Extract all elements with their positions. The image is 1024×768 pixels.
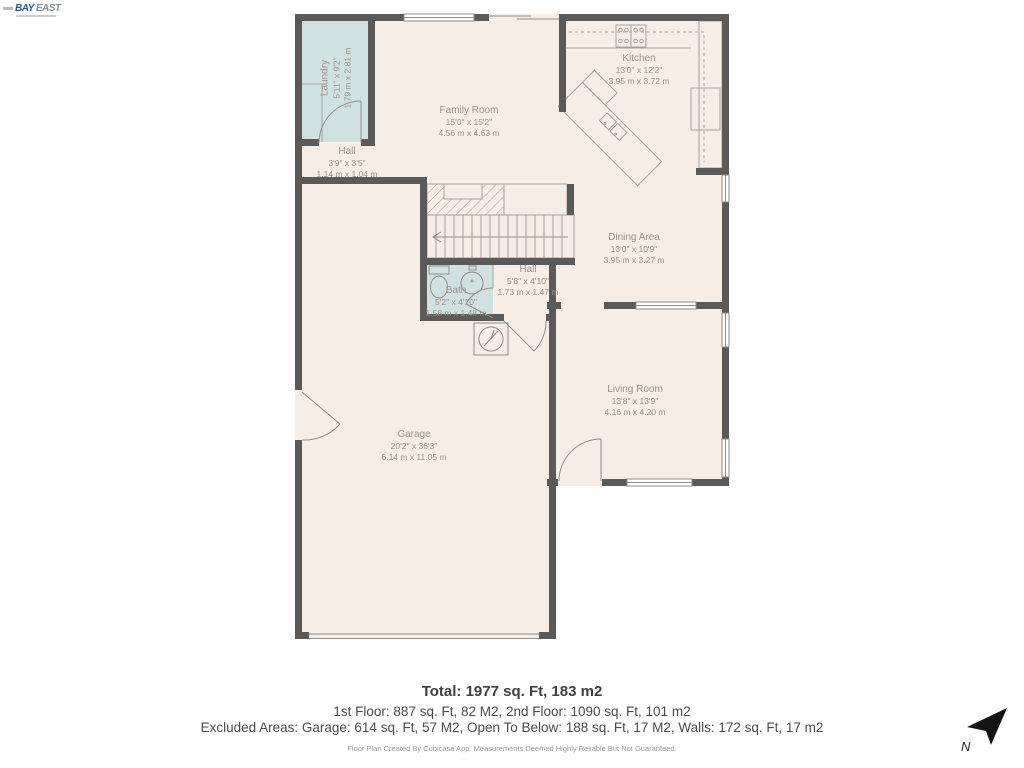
room-name: Garage [381,429,446,441]
room-label-dining-area: Dining Area 13'0" x 10'9" 3.95 m x 3.27 … [604,232,665,265]
room-label-living-room: Living Room 13'8" x 13'9" 4.16 m x 4.20 … [605,384,666,417]
room-label-kitchen: Kitchen 13'0" x 12'2" 3.95 m x 3.72 m [609,53,670,86]
window-dining-right [722,175,729,202]
room-dim-metric: 4.16 m x 4.20 m [605,407,666,418]
total-area-text: Total: 1977 sq. Ft, 183 m2 [0,683,1024,700]
room-name: Dining Area [604,232,665,244]
window-living-right-1 [722,313,729,347]
bayeast-logo: BAY EAST [3,3,61,14]
room-name: Hall [498,264,559,276]
window-living-bottom [627,479,692,486]
room-dim-metric: 3.95 m x 3.72 m [609,76,670,87]
window-living-right-2 [722,439,729,477]
room-label-garage: Garage 20'2" x 36'3" 6.14 m x 11.05 m [381,429,446,462]
logo-dash [3,7,13,10]
logo-text-east: EAST [36,3,61,14]
room-dim-imperial: 3'9" x 3'5" [317,158,378,169]
room-dim-imperial: 15'0" x 15'2" [439,117,500,128]
room-dim-metric: 1.14 m x 1.04 m [317,169,378,180]
room-dim-metric: 6.14 m x 11.05 m [381,452,446,463]
room-label-laundry: Laundry 5'11" x 9'2" 1.79 m x 2.81 m [320,48,353,109]
disclaimer-text: Floor Plan Created By Cubicasa App. Meas… [0,744,1024,753]
room-dim-imperial: 20'2" x 36'3" [381,441,446,452]
room-dim-imperial: 5'8" x 4'10" [498,276,559,287]
excluded-areas-text: Excluded Areas: Garage: 614 sq. Ft, 57 M… [0,720,1024,735]
room-name: Hall [317,146,378,158]
floor-plan: Laundry 5'11" x 9'2" 1.79 m x 2.81 m Hal… [292,12,732,644]
room-dim-metric: 1.79 m x 2.81 m [342,48,353,109]
room-dim-metric: 4.56 m x 4.63 m [439,128,500,139]
window-family-top [404,14,474,21]
room-dim-metric: 1.58 m x 1.48 m [426,308,487,319]
room-dim-imperial: 13'0" x 10'9" [604,244,665,255]
room-label-bath: Bath 5'2" x 4'10" 1.58 m x 1.48 m [426,285,487,318]
north-arrow-icon: N [945,695,1020,760]
floor-areas [295,14,729,639]
floor-areas-text: 1st Floor: 887 sq. Ft, 82 M2, 2nd Floor:… [0,704,1024,719]
logo-text-bay: BAY [15,3,34,14]
north-label: N [961,739,971,754]
room-name: Family Room [439,105,500,117]
room-dim-imperial: 5'11" x 9'2" [332,48,343,109]
room-name: Laundry [320,48,332,109]
floor-plan-graphics [292,12,732,644]
room-name: Bath [426,285,487,297]
room-dim-metric: 1.73 m x 1.47 m [498,287,559,298]
room-label-hall-entry: Hall 5'8" x 4'10" 1.73 m x 1.47 m [498,264,559,297]
logo-underline [16,15,56,17]
room-dim-imperial: 5'2" x 4'10" [426,297,487,308]
room-label-hall-upper: Hall 3'9" x 3'5" 1.14 m x 1.04 m [317,146,378,179]
window-living-top [636,302,696,309]
room-dim-imperial: 13'0" x 12'2" [609,65,670,76]
room-name: Kitchen [609,53,670,65]
north-arrow-shape [967,708,1007,745]
room-name: Living Room [605,384,666,396]
room-dim-metric: 3.95 m x 3.27 m [604,255,665,266]
room-label-family-room: Family Room 15'0" x 15'2" 4.56 m x 4.63 … [439,105,500,138]
room-dim-imperial: 13'8" x 13'9" [605,396,666,407]
